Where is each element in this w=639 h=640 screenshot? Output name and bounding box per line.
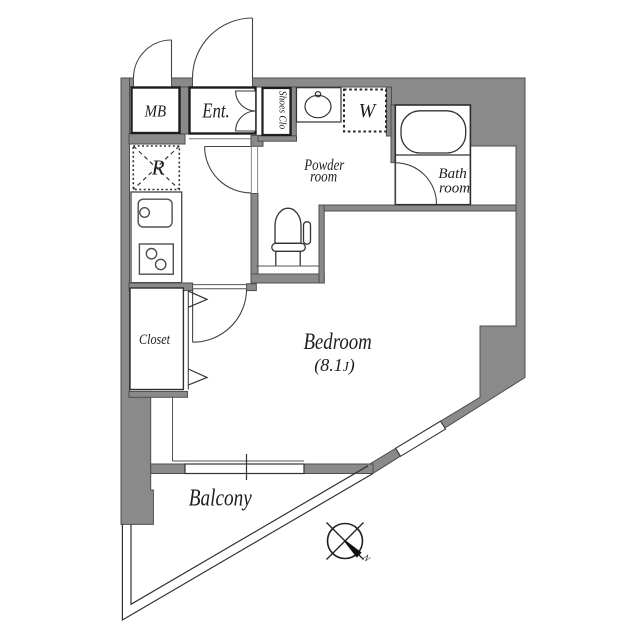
svg-text:MB: MB xyxy=(144,102,167,121)
svg-text:(8.1J): (8.1J) xyxy=(314,355,355,376)
svg-text:R: R xyxy=(151,155,165,179)
svg-text:Balcony: Balcony xyxy=(189,486,252,512)
svg-text:W: W xyxy=(359,100,378,122)
svg-text:room: room xyxy=(439,180,470,196)
svg-text:Bedroom: Bedroom xyxy=(303,329,371,354)
svg-text:room: room xyxy=(310,169,337,186)
svg-text:Closet: Closet xyxy=(139,332,171,348)
svg-text:Shoes Clo: Shoes Clo xyxy=(277,91,288,130)
svg-text:Ent.: Ent. xyxy=(201,99,229,123)
